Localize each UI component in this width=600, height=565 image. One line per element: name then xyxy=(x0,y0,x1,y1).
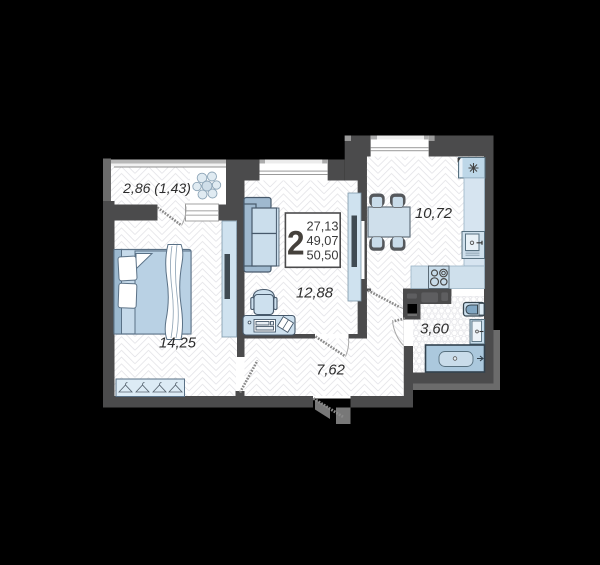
svg-text:12,88: 12,88 xyxy=(296,286,334,302)
svg-text:3,60: 3,60 xyxy=(420,322,450,338)
svg-text:14,25: 14,25 xyxy=(159,336,197,352)
svg-text:49,07: 49,07 xyxy=(307,233,339,248)
svg-text:2,86 (1,43): 2,86 (1,43) xyxy=(122,180,191,196)
svg-text:27,13: 27,13 xyxy=(307,219,339,234)
svg-text:50,50: 50,50 xyxy=(307,248,339,263)
svg-text:7,62: 7,62 xyxy=(316,363,346,379)
svg-text:10,72: 10,72 xyxy=(415,206,453,222)
svg-text:2: 2 xyxy=(287,225,305,263)
